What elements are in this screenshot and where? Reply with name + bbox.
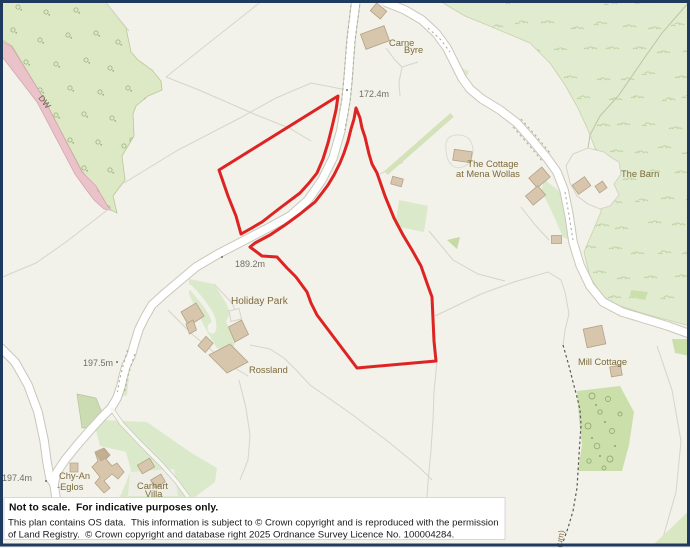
- svg-text:of Land Registry. © Crown cop: of Land Registry. © Crown copyright and …: [8, 530, 454, 541]
- svg-text:172.4m: 172.4m: [359, 89, 389, 99]
- svg-text:Chy-An: Chy-An: [59, 471, 90, 481]
- svg-text:This plan contains OS data. T: This plan contains OS data. This informa…: [8, 518, 499, 529]
- svg-text:-Eglos: -Eglos: [57, 482, 84, 492]
- svg-text:Holiday Park: Holiday Park: [231, 296, 289, 307]
- svg-text:189.2m: 189.2m: [235, 259, 265, 269]
- svg-text:197.4m: 197.4m: [2, 473, 32, 483]
- svg-text:The Cottage: The Cottage: [467, 159, 518, 169]
- svg-text:Rossland: Rossland: [249, 365, 288, 375]
- svg-text:197.5m: 197.5m: [83, 358, 113, 368]
- svg-text:at Mena Wollas: at Mena Wollas: [456, 169, 520, 179]
- svg-text:The Barn: The Barn: [621, 169, 659, 179]
- svg-text:Not to scale. For indicative: Not to scale. For indicative purposes on…: [9, 503, 218, 514]
- svg-text:Mill Cottage: Mill Cottage: [578, 357, 627, 367]
- svg-text:Byre: Byre: [404, 45, 423, 55]
